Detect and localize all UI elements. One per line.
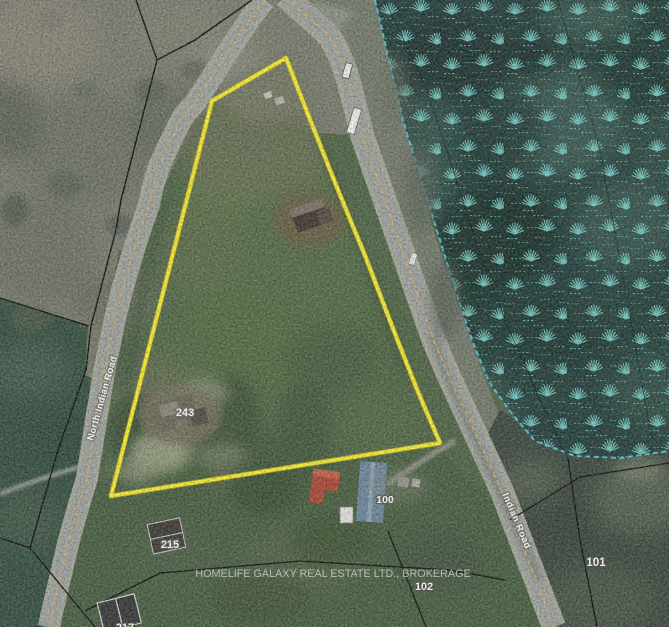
svg-text:HOMELIFE GALAXY REAL ESTATE LT: HOMELIFE GALAXY REAL ESTATE LTD., BROKER… bbox=[195, 568, 470, 580]
